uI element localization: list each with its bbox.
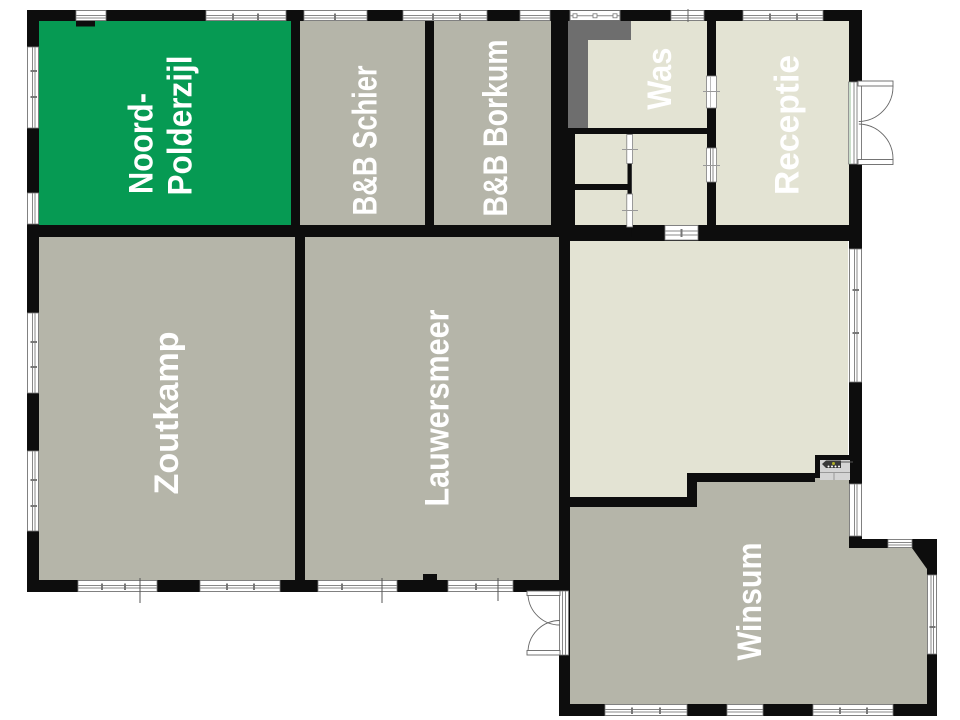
svg-text:Was: Was xyxy=(641,48,679,110)
svg-text:Polderzijl: Polderzijl xyxy=(162,56,200,196)
svg-text:Lauwersmeer: Lauwersmeer xyxy=(418,310,456,507)
svg-text:Winsum: Winsum xyxy=(731,543,769,661)
svg-text:B&B Schier: B&B Schier xyxy=(347,66,385,216)
svg-text:Receptie: Receptie xyxy=(769,55,807,195)
svg-text:Noord-: Noord- xyxy=(123,93,161,194)
svg-text:Zoutkamp: Zoutkamp xyxy=(148,332,186,495)
svg-text:B&B Borkum: B&B Borkum xyxy=(477,40,515,217)
